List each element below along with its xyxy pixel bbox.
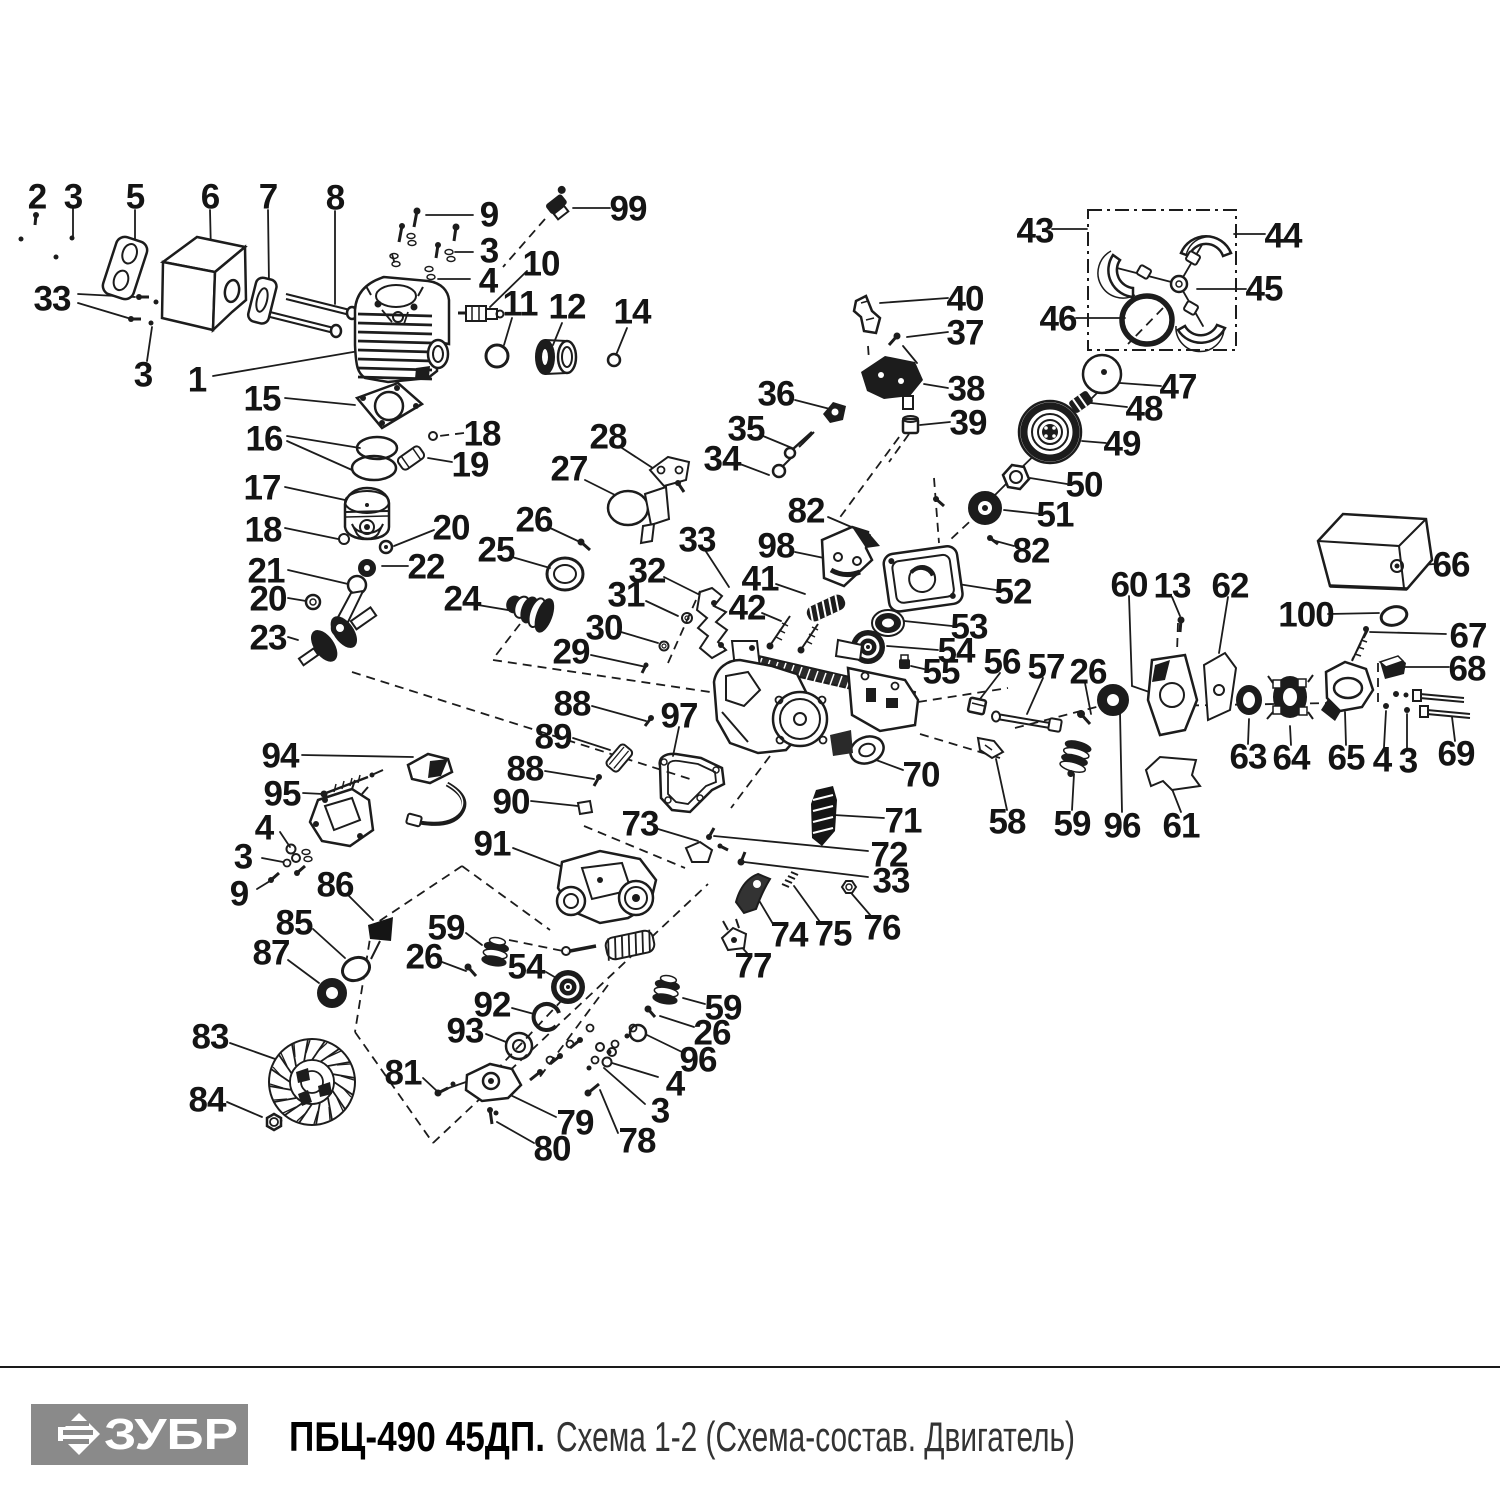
svg-text:99: 99	[610, 190, 647, 229]
svg-text:43: 43	[1017, 212, 1054, 251]
svg-text:33: 33	[873, 862, 910, 901]
svg-text:18: 18	[245, 511, 282, 550]
svg-text:4: 4	[255, 809, 275, 848]
svg-text:74: 74	[771, 916, 809, 955]
svg-text:19: 19	[452, 446, 489, 485]
svg-text:14: 14	[614, 293, 652, 332]
svg-text:55: 55	[923, 653, 960, 692]
svg-text:3: 3	[651, 1092, 670, 1131]
svg-text:93: 93	[447, 1012, 484, 1051]
svg-text:26: 26	[1070, 653, 1107, 692]
svg-text:66: 66	[1433, 546, 1470, 585]
svg-text:23: 23	[250, 619, 287, 658]
svg-text:17: 17	[244, 469, 281, 508]
svg-text:51: 51	[1037, 496, 1074, 535]
svg-text:82: 82	[1013, 532, 1050, 571]
svg-text:64: 64	[1273, 739, 1311, 778]
svg-text:8: 8	[326, 179, 345, 218]
svg-text:97: 97	[661, 697, 698, 736]
svg-text:56: 56	[984, 643, 1021, 682]
svg-text:26: 26	[406, 938, 443, 977]
svg-text:83: 83	[192, 1018, 229, 1057]
svg-text:20: 20	[433, 509, 470, 548]
svg-text:59: 59	[1054, 805, 1091, 844]
svg-text:39: 39	[950, 404, 987, 443]
svg-text:91: 91	[474, 825, 511, 864]
svg-text:100: 100	[1278, 596, 1334, 635]
svg-text:70: 70	[903, 756, 940, 795]
svg-text:81: 81	[385, 1054, 422, 1093]
svg-text:73: 73	[622, 805, 659, 844]
svg-text:4: 4	[479, 262, 499, 301]
svg-text:7: 7	[259, 178, 277, 217]
svg-text:32: 32	[629, 552, 666, 591]
svg-text:96: 96	[680, 1041, 717, 1080]
svg-text:10: 10	[523, 245, 560, 284]
svg-text:46: 46	[1040, 300, 1077, 339]
svg-text:44: 44	[1265, 217, 1303, 256]
svg-text:58: 58	[989, 803, 1026, 842]
svg-text:9: 9	[480, 196, 499, 235]
svg-text:68: 68	[1449, 650, 1486, 689]
svg-text:54: 54	[508, 948, 546, 987]
svg-text:75: 75	[815, 915, 852, 954]
svg-text:80: 80	[534, 1130, 571, 1169]
svg-text:3: 3	[64, 178, 83, 217]
svg-text:22: 22	[408, 548, 445, 587]
svg-text:4: 4	[1373, 741, 1393, 780]
svg-text:90: 90	[493, 783, 530, 822]
svg-text:65: 65	[1328, 739, 1365, 778]
svg-text:3: 3	[1399, 742, 1418, 781]
svg-text:69: 69	[1438, 735, 1475, 774]
svg-text:61: 61	[1163, 807, 1200, 846]
svg-text:27: 27	[551, 450, 588, 489]
svg-text:96: 96	[1104, 807, 1141, 846]
svg-text:84: 84	[189, 1081, 227, 1120]
svg-text:76: 76	[864, 909, 901, 948]
svg-text:29: 29	[553, 633, 590, 672]
svg-text:16: 16	[246, 420, 283, 459]
svg-text:Схема 1-2 (Схема-состав. Двига: Схема 1-2 (Схема-состав. Двигатель)	[556, 1413, 1075, 1460]
svg-text:11: 11	[503, 285, 539, 324]
svg-text:5: 5	[126, 178, 145, 217]
svg-text:20: 20	[250, 580, 287, 619]
svg-text:13: 13	[1154, 567, 1191, 606]
svg-text:25: 25	[478, 531, 515, 570]
svg-text:42: 42	[729, 589, 766, 628]
svg-text:ЗУБР: ЗУБР	[104, 1410, 238, 1459]
svg-text:24: 24	[444, 580, 482, 619]
svg-text:34: 34	[704, 440, 742, 479]
svg-text:15: 15	[244, 380, 281, 419]
svg-text:33: 33	[679, 521, 716, 560]
svg-text:45: 45	[1246, 270, 1283, 309]
svg-text:63: 63	[1230, 738, 1267, 777]
svg-text:9: 9	[230, 875, 249, 914]
svg-text:3: 3	[234, 838, 253, 877]
svg-text:77: 77	[735, 947, 772, 986]
svg-text:87: 87	[253, 934, 290, 973]
svg-text:6: 6	[201, 178, 220, 217]
svg-text:94: 94	[262, 737, 300, 776]
svg-text:62: 62	[1212, 567, 1249, 606]
svg-text:1: 1	[188, 361, 207, 400]
svg-text:48: 48	[1126, 390, 1163, 429]
svg-text:28: 28	[590, 418, 627, 457]
svg-text:57: 57	[1028, 648, 1065, 687]
svg-text:82: 82	[788, 492, 825, 531]
svg-text:60: 60	[1111, 566, 1148, 605]
svg-text:3: 3	[134, 356, 153, 395]
svg-text:49: 49	[1104, 425, 1141, 464]
svg-text:86: 86	[317, 866, 354, 905]
svg-text:2: 2	[28, 178, 47, 217]
svg-text:52: 52	[995, 573, 1032, 612]
svg-text:26: 26	[516, 501, 553, 540]
svg-text:98: 98	[758, 527, 795, 566]
svg-text:12: 12	[549, 288, 586, 327]
svg-text:47: 47	[1160, 368, 1197, 407]
svg-text:36: 36	[758, 375, 795, 414]
svg-text:ПБЦ-490 45ДП.: ПБЦ-490 45ДП.	[289, 1413, 545, 1460]
svg-text:33: 33	[34, 280, 71, 319]
svg-text:37: 37	[947, 314, 984, 353]
